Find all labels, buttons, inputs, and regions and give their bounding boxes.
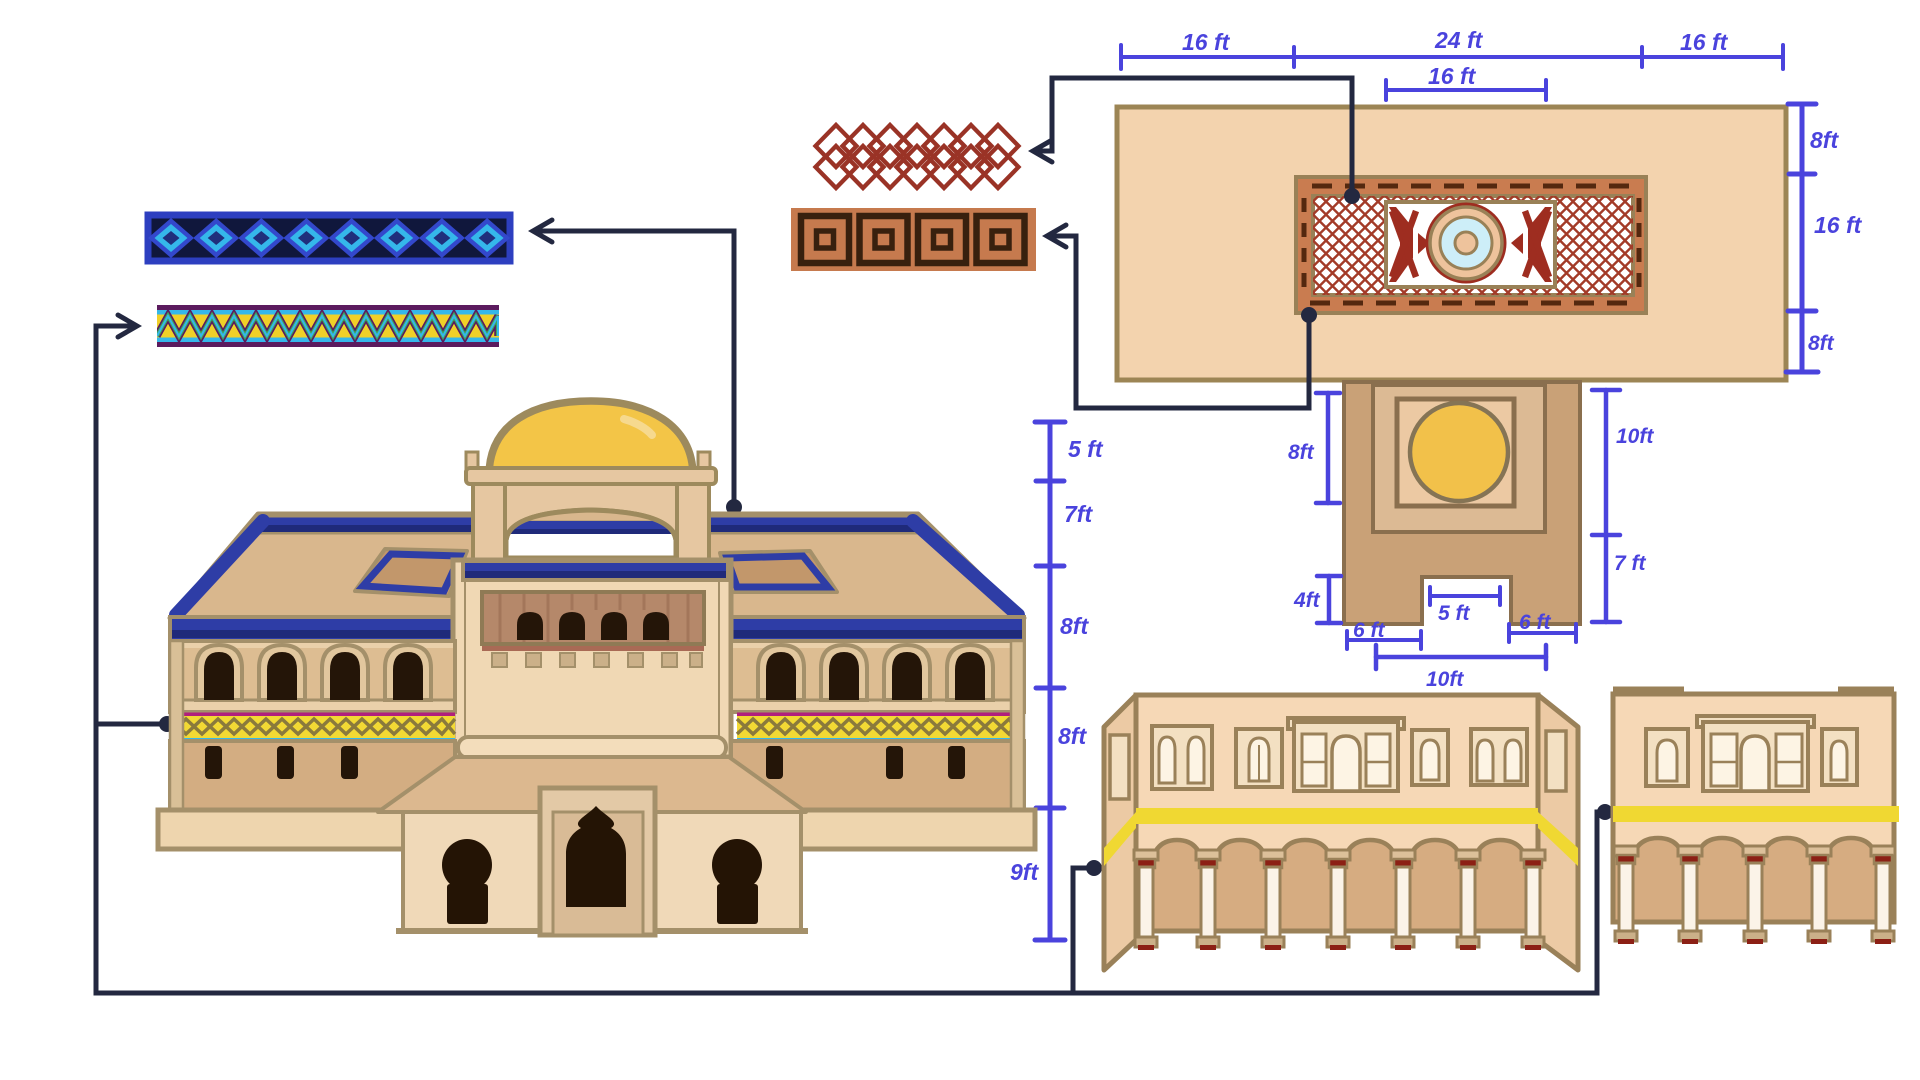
svg-text:5 ft: 5 ft (1068, 436, 1104, 462)
svg-text:16 ft: 16 ft (1428, 63, 1477, 89)
svg-text:8ft: 8ft (1058, 723, 1087, 749)
svg-text:16 ft: 16 ft (1680, 29, 1729, 55)
svg-text:10ft: 10ft (1616, 425, 1654, 448)
svg-text:16 ft: 16 ft (1182, 29, 1231, 55)
svg-text:6 ft: 6 ft (1353, 619, 1386, 642)
svg-text:24 ft: 24 ft (1434, 27, 1484, 53)
svg-text:8ft: 8ft (1808, 332, 1835, 355)
svg-text:7ft: 7ft (1064, 501, 1093, 527)
svg-text:16 ft: 16 ft (1814, 212, 1863, 238)
svg-text:8ft: 8ft (1060, 613, 1089, 639)
svg-text:10ft: 10ft (1426, 668, 1464, 691)
svg-text:8ft: 8ft (1810, 127, 1839, 153)
svg-text:6 ft: 6 ft (1519, 611, 1552, 634)
svg-text:7 ft: 7 ft (1614, 552, 1647, 575)
svg-text:5 ft: 5 ft (1438, 602, 1471, 625)
svg-text:8ft: 8ft (1288, 441, 1315, 464)
svg-text:4ft: 4ft (1293, 589, 1321, 612)
svg-text:9ft: 9ft (1010, 859, 1039, 885)
